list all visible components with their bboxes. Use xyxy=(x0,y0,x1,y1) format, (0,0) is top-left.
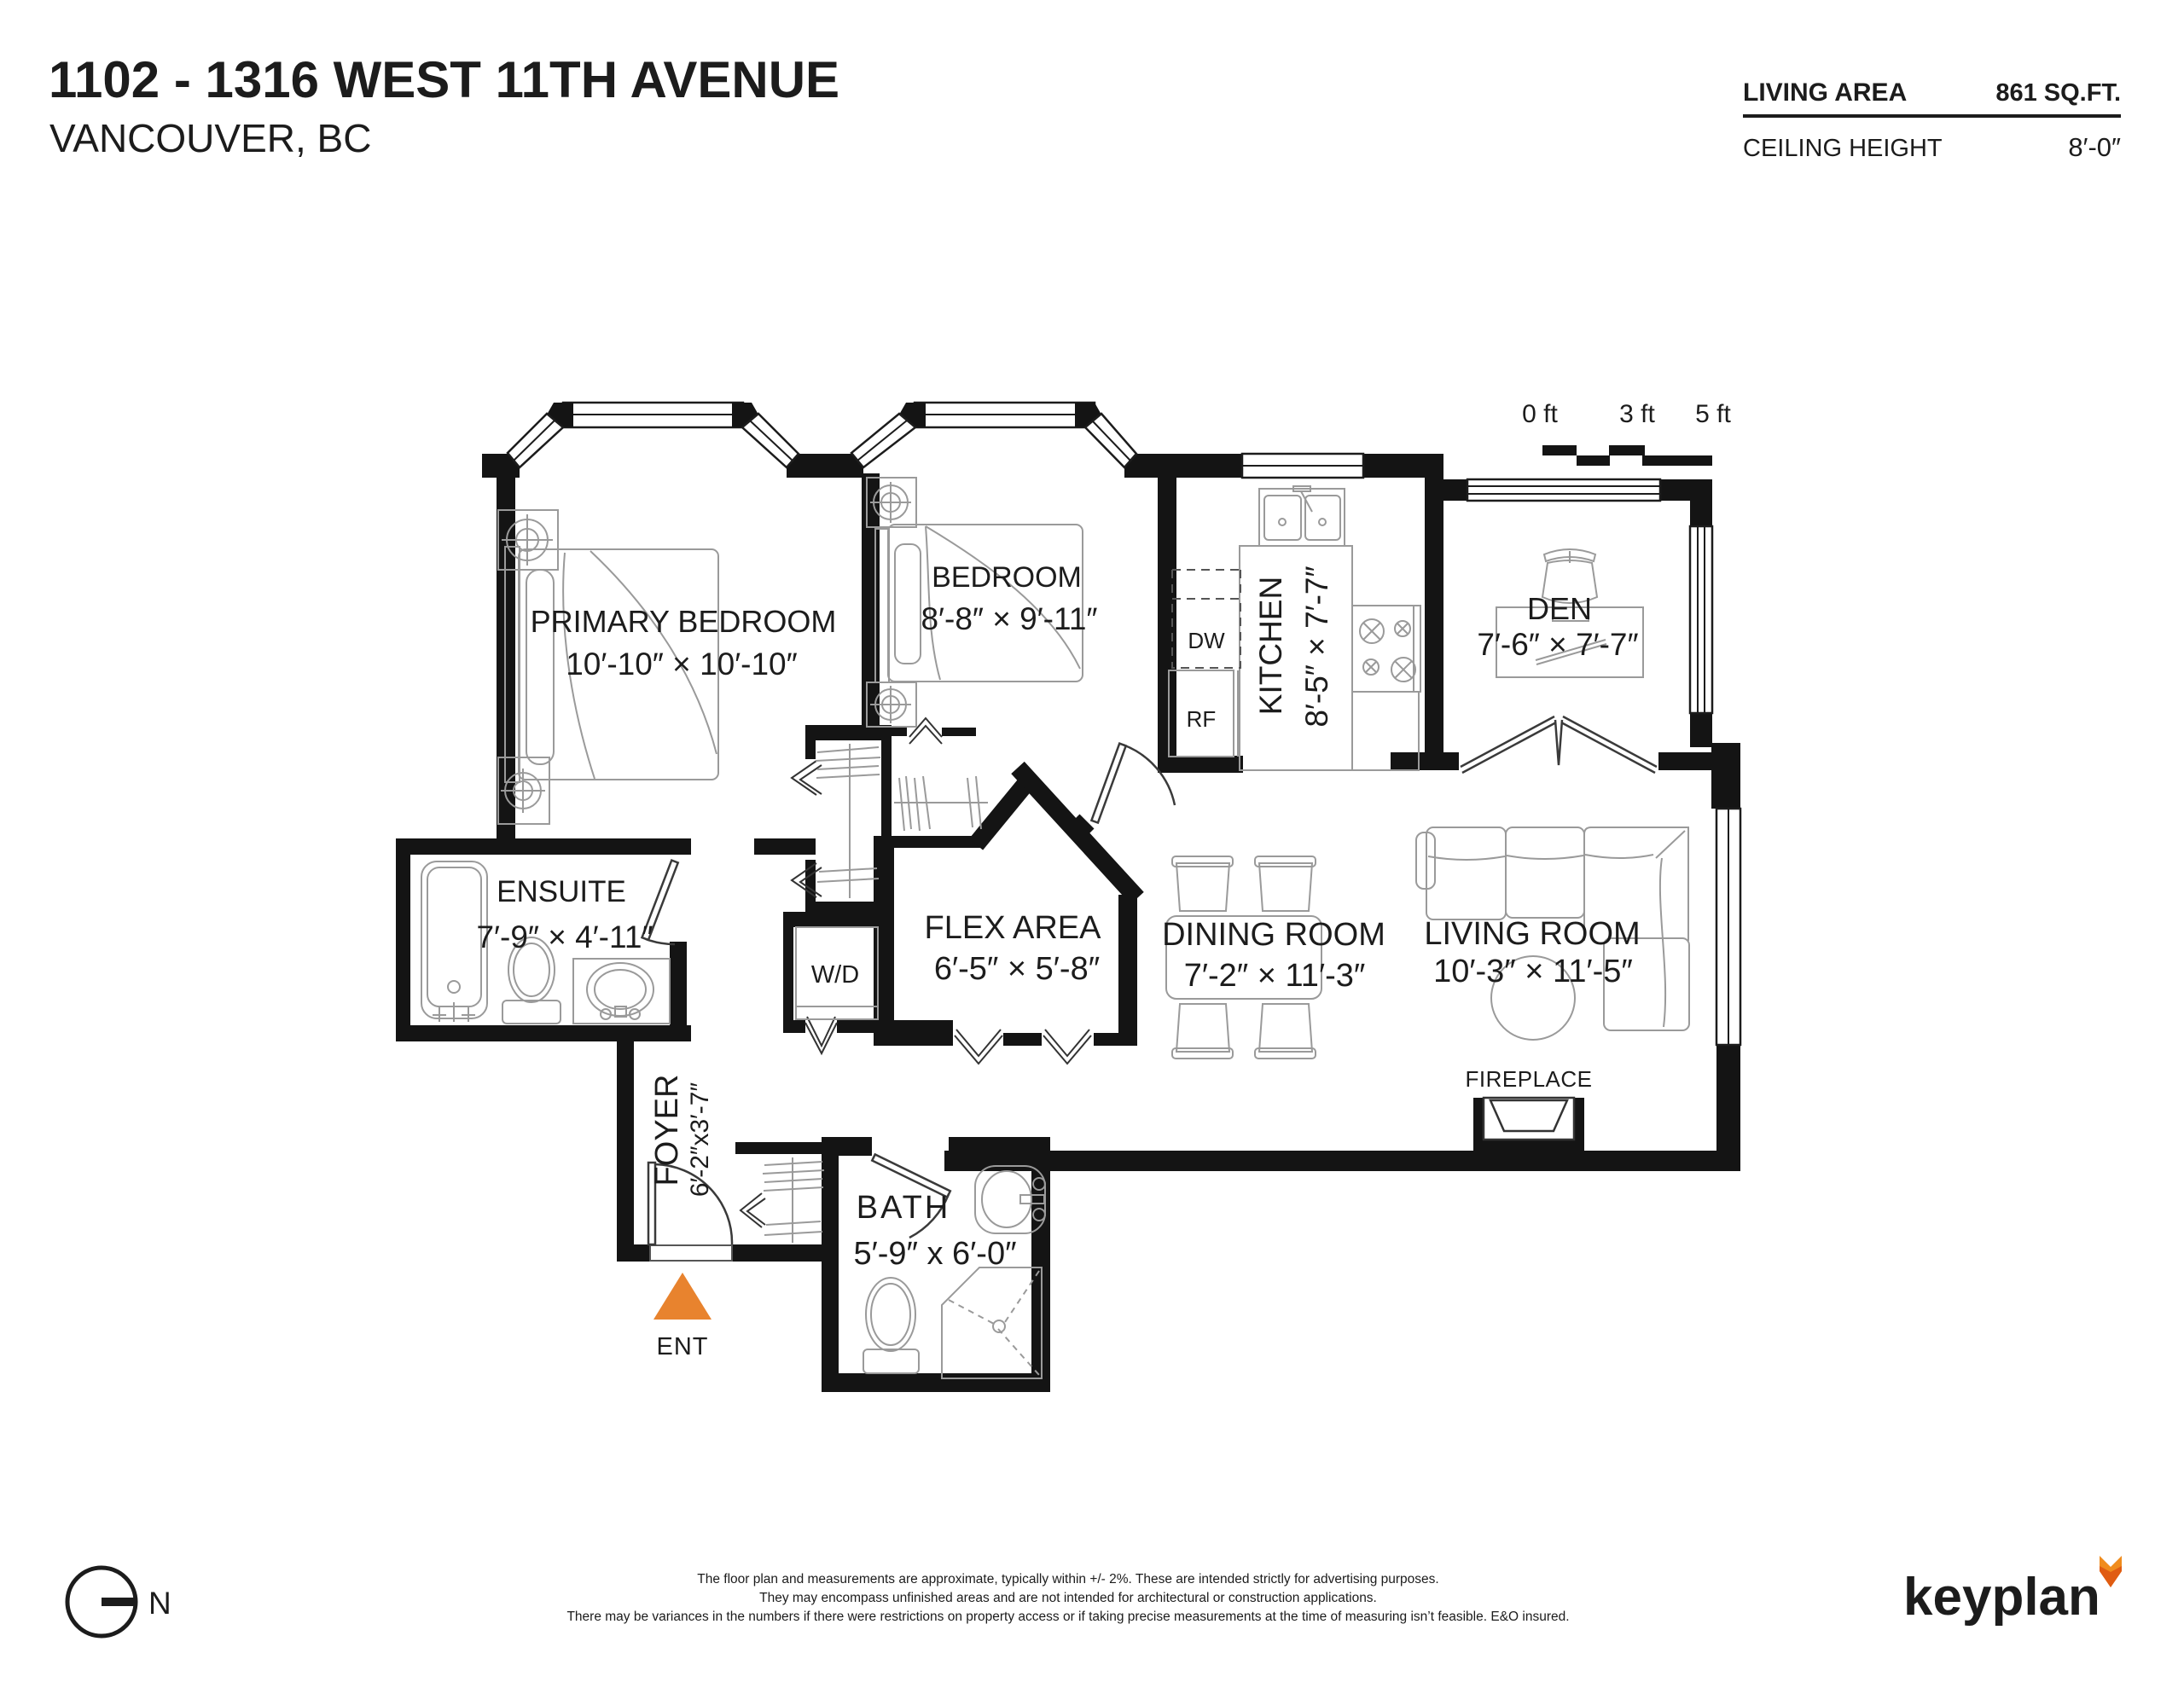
svg-text:RF: RF xyxy=(1187,706,1217,732)
svg-text:8′-5″ × 7′-7″: 8′-5″ × 7′-7″ xyxy=(1299,566,1334,727)
svg-text:DEN: DEN xyxy=(1527,591,1592,626)
svg-text:FOYER: FOYER xyxy=(649,1075,685,1186)
svg-text:8′-8″ × 9′-11″: 8′-8″ × 9′-11″ xyxy=(921,601,1097,636)
svg-text:The floor plan and measurement: The floor plan and measurements are appr… xyxy=(697,1572,1438,1586)
svg-text:VANCOUVER, BC: VANCOUVER, BC xyxy=(49,116,371,160)
svg-text:7′-6″ × 7′-7″: 7′-6″ × 7′-7″ xyxy=(1477,627,1638,662)
svg-text:8′-0″: 8′-0″ xyxy=(2068,132,2121,162)
svg-text:FLEX AREA: FLEX AREA xyxy=(925,910,1102,946)
svg-text:FIREPLACE: FIREPLACE xyxy=(1466,1066,1593,1092)
svg-text:KITCHEN: KITCHEN xyxy=(1253,577,1288,715)
svg-text:DW: DW xyxy=(1188,628,1225,653)
svg-text:BATH: BATH xyxy=(857,1190,951,1226)
svg-text:3 ft: 3 ft xyxy=(1619,400,1655,428)
svg-text:1102 - 1316 WEST 11TH AVENUE: 1102 - 1316 WEST 11TH AVENUE xyxy=(49,51,839,108)
svg-text:keyplan: keyplan xyxy=(1903,1568,2100,1627)
svg-text:N: N xyxy=(148,1586,171,1621)
svg-text:7′-9″ × 4′-11″: 7′-9″ × 4′-11″ xyxy=(476,919,653,954)
svg-text:6′-2″x3′-7″: 6′-2″x3′-7″ xyxy=(686,1082,714,1198)
svg-text:They may encompass unfinished: They may encompass unfinished areas and … xyxy=(759,1591,1377,1605)
svg-text:PRIMARY BEDROOM: PRIMARY BEDROOM xyxy=(531,604,837,639)
svg-text:ENSUITE: ENSUITE xyxy=(497,875,626,908)
svg-text:ENT: ENT xyxy=(657,1333,709,1360)
svg-text:There may be variances in the: There may be variances in the numbers if… xyxy=(566,1610,1569,1624)
svg-text:0 ft: 0 ft xyxy=(1522,400,1558,428)
svg-text:7′-2″ × 11′-3″: 7′-2″ × 11′-3″ xyxy=(1184,958,1366,994)
svg-text:W/D: W/D xyxy=(811,961,859,989)
svg-text:10′-10″ × 10′-10″: 10′-10″ × 10′-10″ xyxy=(566,647,798,682)
svg-text:861 SQ.FT.: 861 SQ.FT. xyxy=(1995,79,2121,107)
svg-text:BEDROOM: BEDROOM xyxy=(932,561,1082,594)
svg-text:5′-9″ x 6′-0″: 5′-9″ x 6′-0″ xyxy=(853,1236,1016,1272)
svg-text:10′-3″ × 11′-5″: 10′-3″ × 11′-5″ xyxy=(1433,954,1633,989)
svg-text:LIVING AREA: LIVING AREA xyxy=(1743,78,1907,107)
svg-text:6′-5″ × 5′-8″: 6′-5″ × 5′-8″ xyxy=(934,951,1100,987)
svg-text:CEILING HEIGHT: CEILING HEIGHT xyxy=(1743,135,1943,162)
svg-text:DINING ROOM: DINING ROOM xyxy=(1162,917,1385,953)
svg-text:5 ft: 5 ft xyxy=(1695,400,1731,428)
svg-text:LIVING ROOM: LIVING ROOM xyxy=(1424,916,1640,952)
